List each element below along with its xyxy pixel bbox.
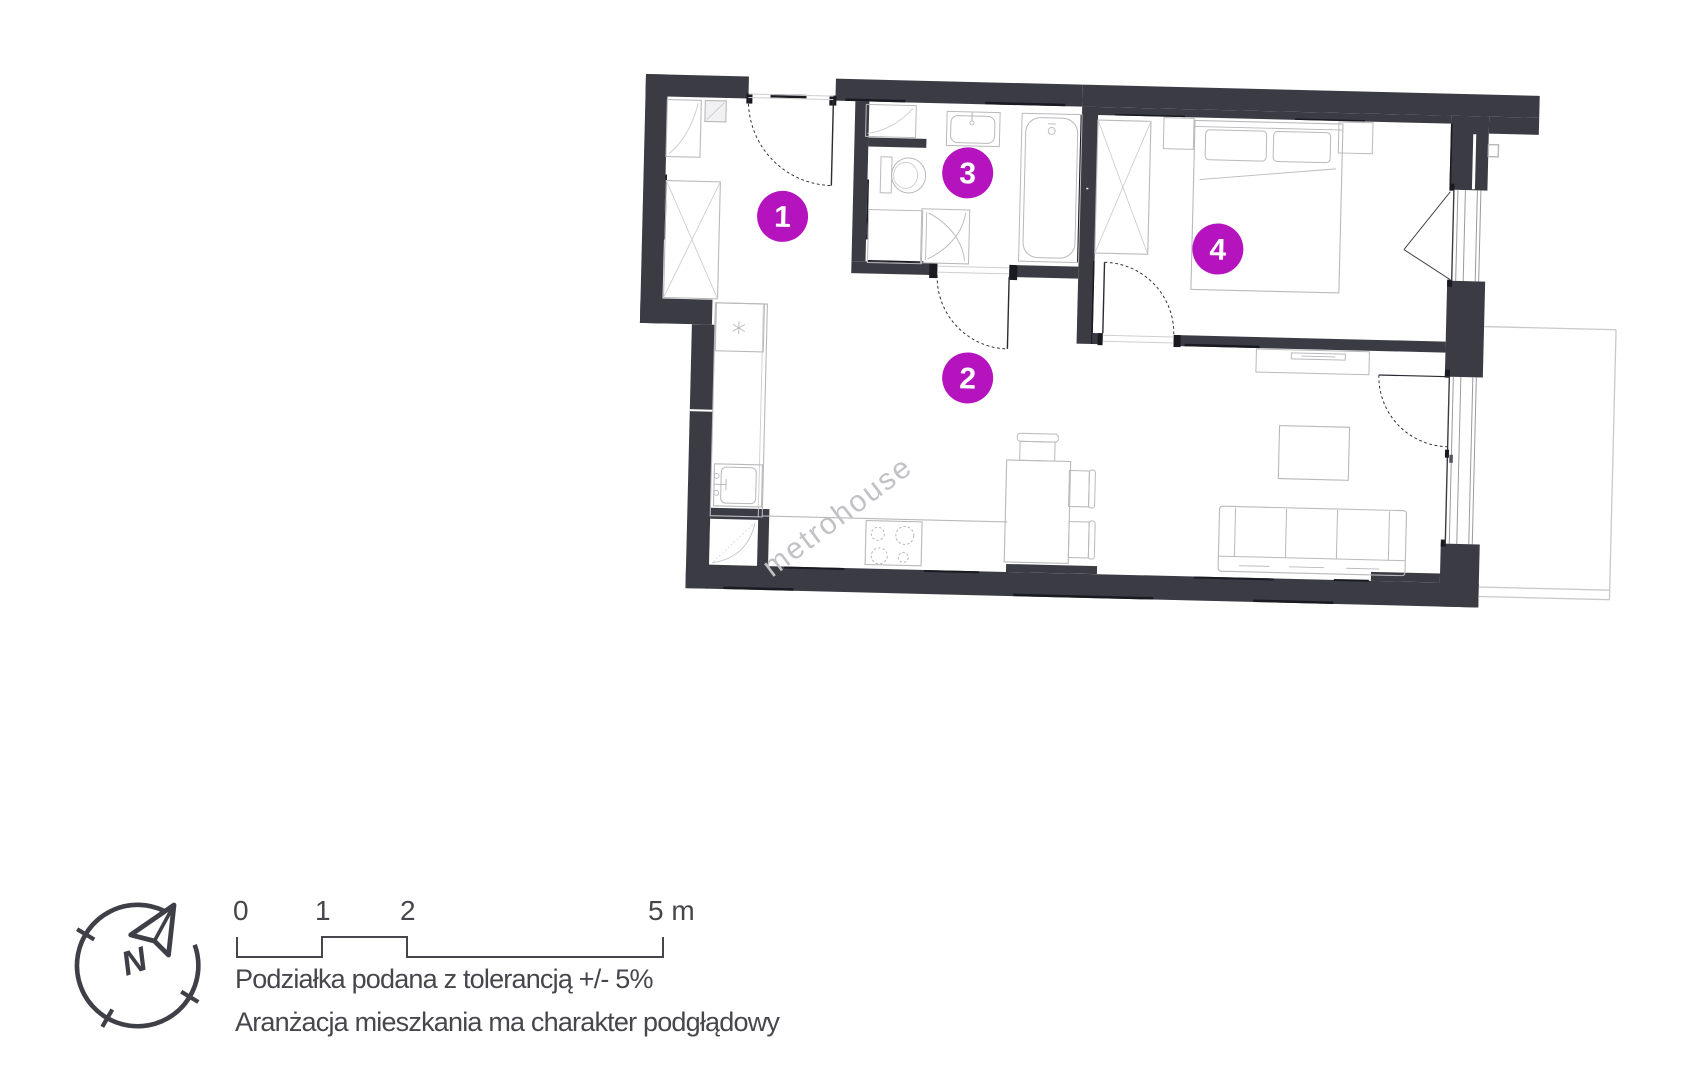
svg-text:5 m: 5 m (648, 895, 695, 926)
svg-text:1: 1 (315, 895, 331, 926)
svg-text:2: 2 (959, 362, 976, 395)
svg-text:1: 1 (774, 201, 791, 234)
svg-text:3: 3 (959, 157, 976, 190)
svg-text:Podziałka podana z tolerancją: Podziałka podana z tolerancją +/- 5% (235, 964, 654, 994)
svg-text:2: 2 (400, 895, 416, 926)
svg-text:Aranżacja mieszkania ma charak: Aranżacja mieszkania ma charakter podgłą… (235, 1007, 780, 1037)
svg-text:0: 0 (233, 895, 249, 926)
svg-text:4: 4 (1209, 233, 1227, 266)
